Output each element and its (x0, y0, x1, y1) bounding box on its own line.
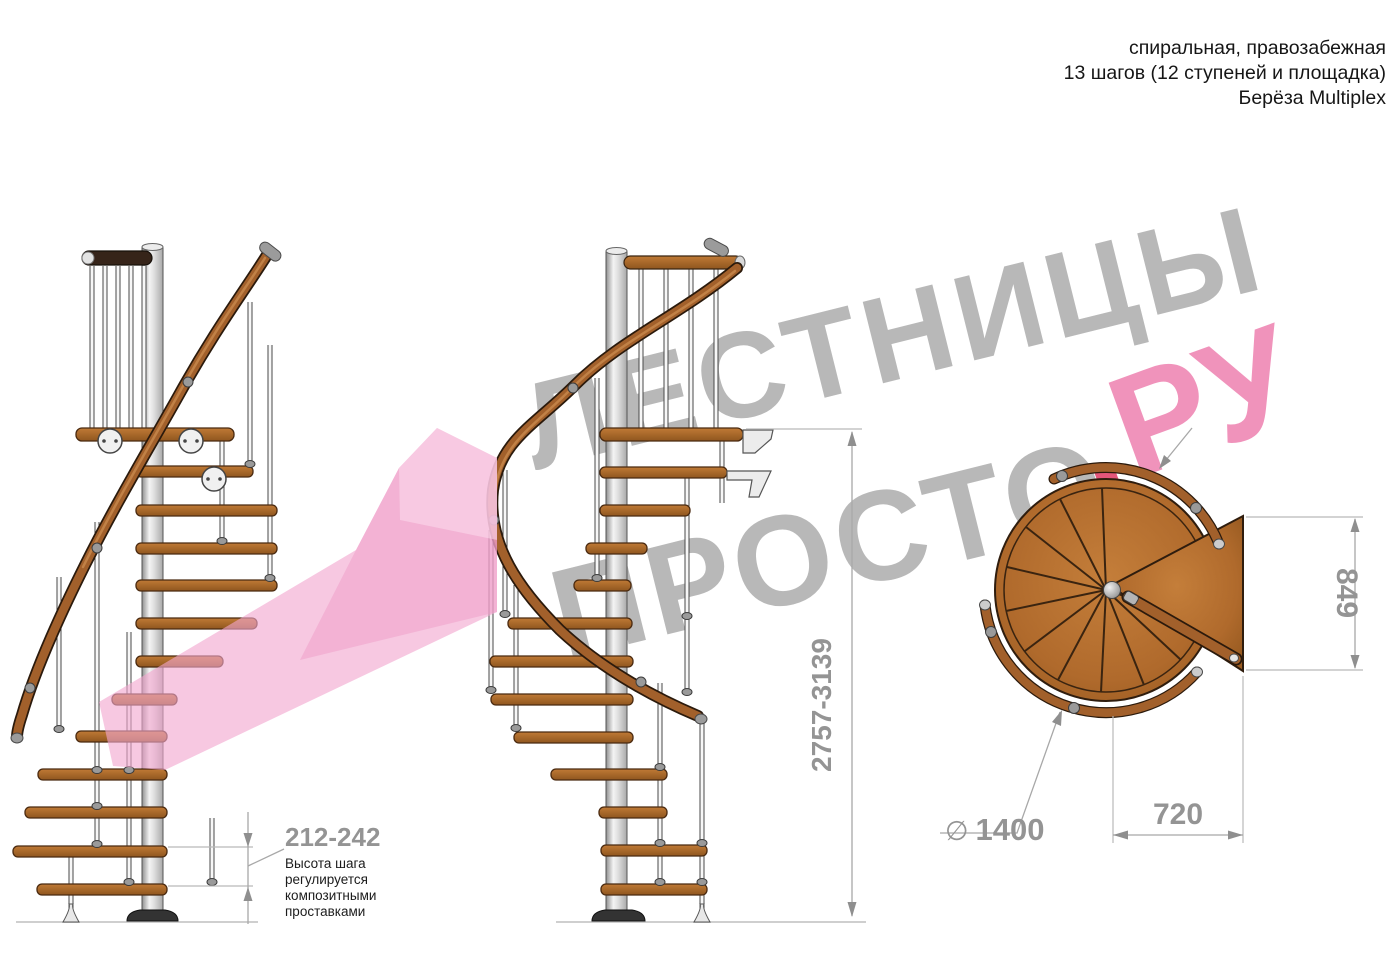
pole-base (592, 910, 645, 921)
step (38, 769, 167, 780)
landing-depth-value: 849 (1330, 568, 1363, 618)
step (599, 807, 667, 818)
step (508, 618, 632, 629)
title-block: спиральная, правозабежная 13 шагов (12 с… (1064, 36, 1386, 111)
pole-base (127, 910, 178, 921)
step (491, 694, 633, 705)
step (13, 846, 167, 857)
rod-floor-base (694, 904, 710, 922)
step (136, 580, 277, 591)
handrail-end-cap (11, 733, 23, 743)
pole-ball-top (1104, 582, 1121, 599)
side-view-left (11, 240, 283, 922)
diameter-symbol: ∅ (945, 816, 969, 846)
step-height-note-1: Высота шага (285, 856, 366, 871)
step (574, 580, 631, 591)
step-height-note-3: композитными (285, 888, 376, 903)
step (586, 543, 647, 554)
drawing-sheet: спиральная, правозабежная 13 шагов (12 с… (0, 0, 1400, 976)
rail-stub (702, 236, 730, 258)
step (136, 543, 277, 554)
step (600, 467, 727, 478)
step (136, 505, 277, 516)
dimension-diameter: ∅1400 (940, 710, 1062, 847)
title-line-1: спиральная, правозабежная (1064, 36, 1386, 61)
svg-text:∅1400: ∅1400 (945, 812, 1045, 847)
diameter-value: 1400 (976, 812, 1045, 847)
pole-top-cap (606, 248, 627, 255)
step (601, 884, 707, 895)
rod-floor-base (63, 904, 79, 922)
guardrail-end-cap (82, 252, 94, 264)
step (551, 769, 667, 780)
title-line-3: Берёза Multiplex (1064, 86, 1386, 111)
total-height-value: 2757-3139 (806, 638, 837, 772)
dimension-landing-depth: 849 (1246, 517, 1363, 670)
step-height-note-2: регулируется (285, 872, 368, 887)
step-height-note-4: проставками (285, 904, 365, 919)
landing-width-value: 720 (1153, 798, 1203, 831)
dimension-landing-width: 720 (1113, 676, 1243, 843)
handrail-end-cap (695, 714, 707, 724)
technical-drawing: ЛЕСТНИЦЫ ПРОСТО .РУ (0, 0, 1400, 976)
landing-platform (600, 428, 743, 441)
pole-top-cap (142, 244, 163, 251)
step (136, 466, 253, 477)
step-height-value: 212-242 (285, 822, 380, 852)
step (600, 505, 690, 516)
landing-guardrail (624, 256, 742, 269)
step (37, 884, 167, 895)
step (514, 732, 633, 743)
step (601, 845, 707, 856)
title-line-2: 13 шагов (12 ступеней и площадка) (1064, 61, 1386, 86)
dimension-step-height: 212-242 Высота шага регулируется компози… (168, 812, 380, 924)
